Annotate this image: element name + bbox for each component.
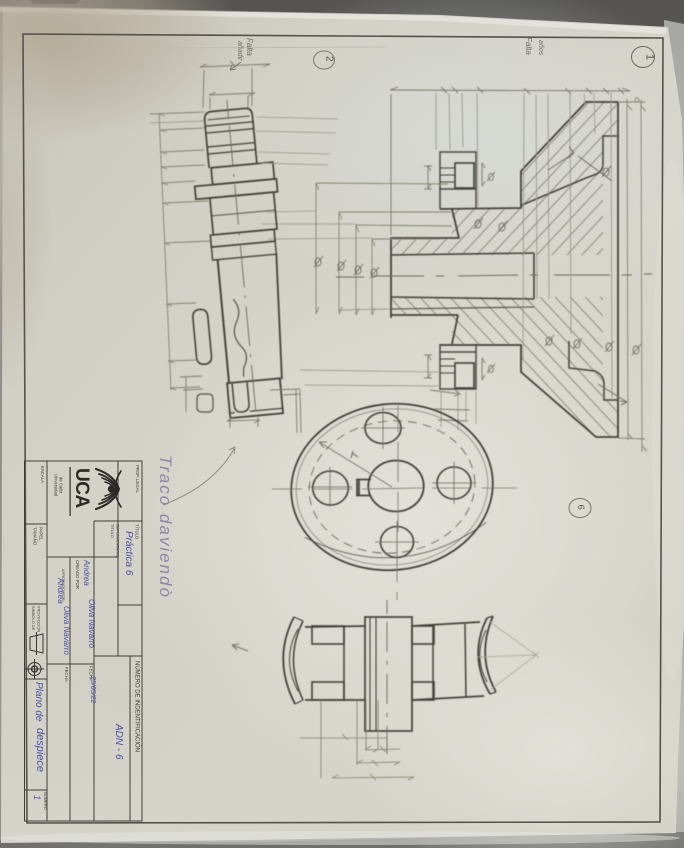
- svg-text:Andrea: Andrea: [82, 559, 91, 586]
- svg-text:SUPLEMENTARIO: SUPLEMENTARIO: [116, 524, 121, 557]
- svg-text:PROP. LEGAL: PROP. LEGAL: [135, 465, 140, 493]
- svg-text:Universidad: Universidad: [54, 474, 59, 497]
- svg-text:Práctica 6: Práctica 6: [123, 531, 134, 576]
- svg-text:ADN - 6: ADN - 6: [113, 723, 124, 760]
- svg-text:FECHA: FECHA: [64, 667, 69, 682]
- svg-text:TÍTULO: TÍTULO: [135, 524, 140, 540]
- svg-text:Andrea: Andrea: [56, 577, 65, 604]
- svg-text:CREADO POR: CREADO POR: [75, 560, 80, 589]
- svg-text:Falta: Falta: [524, 37, 533, 55]
- svg-text:25/05/22: 25/05/22: [89, 675, 96, 703]
- svg-text:PAPEL: PAPEL: [39, 527, 44, 541]
- svg-text:6: 6: [575, 505, 586, 510]
- svg-text:despiece: despiece: [34, 728, 46, 772]
- svg-text:Falta: Falta: [245, 38, 254, 56]
- svg-text:NÚMERO DE INDENTIFICACIÓN: NÚMERO DE INDENTIFICACIÓN: [134, 661, 141, 752]
- svg-text:1: 1: [644, 54, 656, 60]
- svg-text:Oliva Navarro: Oliva Navarro: [87, 599, 96, 648]
- svg-text:2: 2: [324, 56, 335, 62]
- svg-text:Oliva Navarro: Oliva Navarro: [62, 606, 71, 655]
- svg-text:SIMBOLO DE: SIMBOLO DE: [31, 606, 36, 631]
- svg-text:UCA: UCA: [71, 468, 92, 508]
- svg-text:Plano de: Plano de: [33, 682, 44, 722]
- svg-text:TÍTULO: TÍTULO: [110, 524, 115, 538]
- svg-text:ESCALA: ESCALA: [40, 466, 45, 483]
- svg-text:PROYECCIÓN: PROYECCIÓN: [37, 606, 42, 632]
- svg-text:años: años: [537, 40, 544, 56]
- svg-text:NÚMERO: NÚMERO: [43, 792, 48, 810]
- svg-text:1: 1: [32, 795, 42, 800]
- svg-text:TAMAÑO: TAMAÑO: [33, 527, 38, 546]
- svg-text:de Cádiz: de Cádiz: [59, 477, 64, 494]
- svg-text:Traco daviendò: Traco daviendò: [156, 455, 175, 599]
- svg-text:añadir: añadir: [236, 41, 243, 61]
